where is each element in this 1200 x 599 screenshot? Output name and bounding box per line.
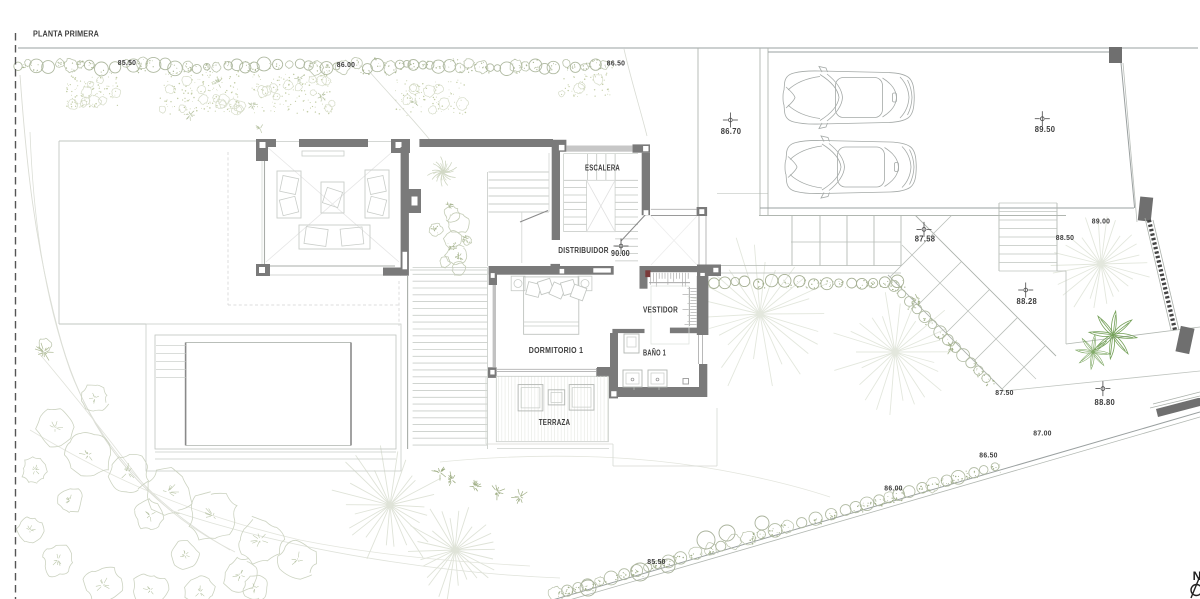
svg-text:88.50: 88.50 — [1056, 233, 1075, 242]
svg-text:85.50: 85.50 — [118, 58, 137, 67]
svg-text:86.00: 86.00 — [884, 484, 903, 493]
svg-text:86.70: 86.70 — [721, 127, 742, 136]
svg-text:90.00: 90.00 — [611, 249, 630, 258]
svg-text:87.00: 87.00 — [1033, 429, 1052, 438]
svg-text:85.50: 85.50 — [647, 557, 666, 566]
svg-text:89.00: 89.00 — [1092, 217, 1111, 226]
svg-text:N: N — [1193, 569, 1200, 583]
svg-text:PLANTA PRIMERA: PLANTA PRIMERA — [33, 30, 99, 39]
svg-text:VESTIDOR: VESTIDOR — [643, 306, 678, 315]
svg-text:88.28: 88.28 — [1017, 297, 1038, 306]
svg-text:BAÑO 1: BAÑO 1 — [643, 349, 666, 358]
svg-text:ESCALERA: ESCALERA — [585, 164, 620, 173]
svg-text:87.50: 87.50 — [995, 388, 1014, 397]
svg-text:89.50: 89.50 — [1035, 125, 1056, 134]
svg-text:88.80: 88.80 — [1095, 398, 1116, 407]
svg-text:DISTRIBUIDOR: DISTRIBUIDOR — [558, 246, 609, 255]
svg-text:DORMITORIO 1: DORMITORIO 1 — [529, 346, 584, 355]
svg-text:86.50: 86.50 — [979, 451, 998, 460]
svg-text:86.50: 86.50 — [607, 59, 626, 68]
svg-text:TERRAZA: TERRAZA — [539, 418, 571, 427]
svg-text:86.00: 86.00 — [337, 60, 356, 69]
svg-text:87.58: 87.58 — [915, 235, 936, 244]
